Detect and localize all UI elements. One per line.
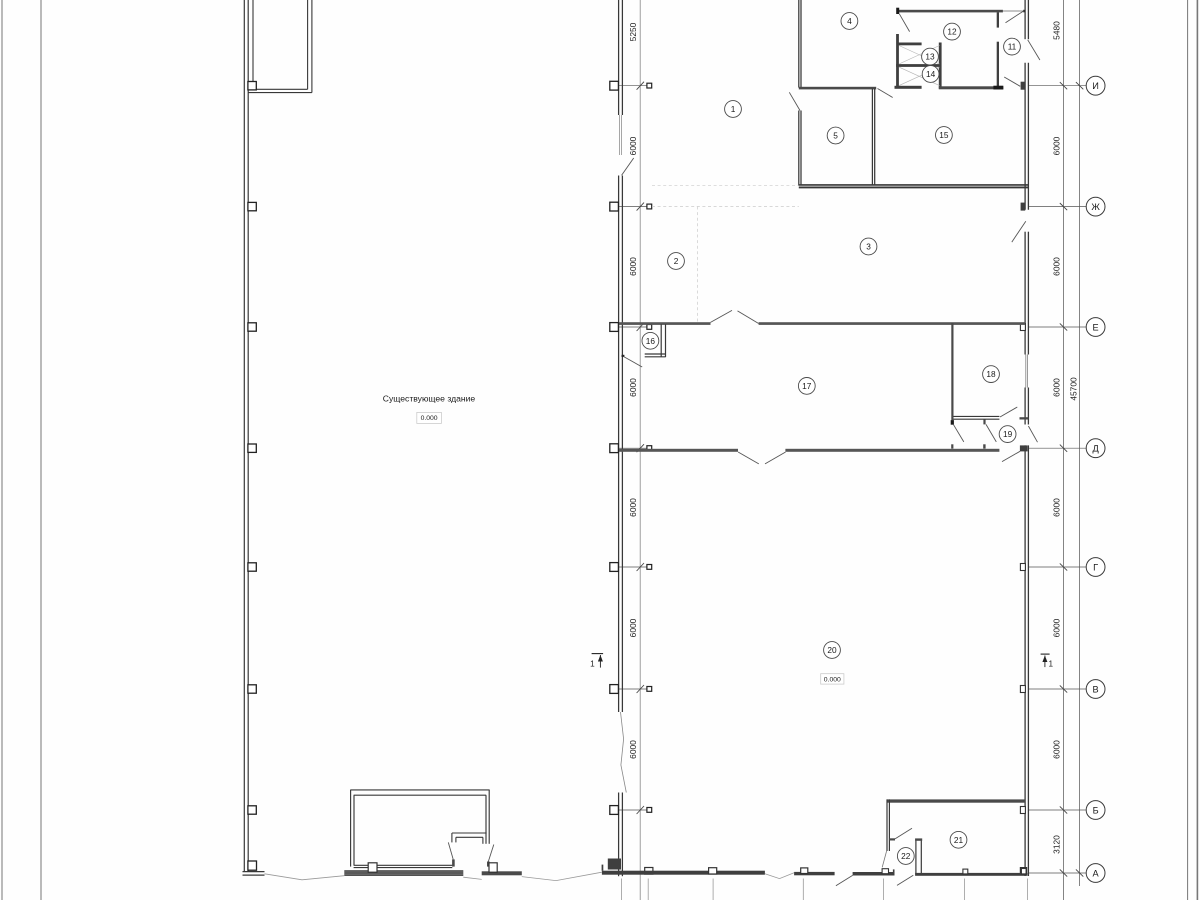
svg-text:11: 11 [1008, 42, 1017, 52]
svg-text:6000: 6000 [1051, 740, 1061, 759]
svg-text:6000: 6000 [1051, 257, 1061, 276]
svg-text:20: 20 [827, 645, 837, 655]
svg-text:5480: 5480 [1051, 21, 1061, 40]
svg-text:3: 3 [866, 241, 871, 251]
svg-text:6000: 6000 [1051, 136, 1061, 155]
svg-text:21: 21 [954, 835, 964, 845]
svg-text:16: 16 [646, 336, 656, 346]
svg-text:5: 5 [833, 130, 838, 140]
svg-text:И: И [1092, 81, 1099, 91]
svg-text:45700: 45700 [1068, 377, 1078, 401]
svg-text:1: 1 [731, 104, 736, 114]
svg-text:6000: 6000 [1051, 378, 1061, 397]
svg-text:0.000: 0.000 [421, 415, 438, 422]
svg-text:13: 13 [925, 52, 935, 62]
svg-text:6000: 6000 [628, 136, 638, 155]
svg-text:А: А [1093, 868, 1100, 878]
svg-text:6000: 6000 [628, 740, 638, 759]
svg-text:2: 2 [674, 256, 679, 266]
svg-text:6000: 6000 [1051, 618, 1061, 637]
svg-text:6000: 6000 [628, 378, 638, 397]
svg-text:17: 17 [802, 381, 812, 391]
svg-text:12: 12 [947, 27, 957, 37]
svg-text:4: 4 [847, 16, 852, 26]
svg-text:Существующее здание: Существующее здание [383, 393, 476, 403]
svg-text:3120: 3120 [1051, 835, 1061, 854]
svg-text:1: 1 [590, 660, 595, 669]
svg-text:Ж: Ж [1091, 202, 1100, 212]
svg-text:6000: 6000 [1051, 498, 1061, 517]
svg-text:1: 1 [1049, 660, 1054, 669]
svg-text:0.000: 0.000 [824, 677, 841, 684]
svg-text:15: 15 [939, 130, 949, 140]
svg-text:6000: 6000 [628, 257, 638, 276]
svg-text:Д: Д [1092, 444, 1099, 454]
svg-text:19: 19 [1003, 429, 1013, 439]
svg-text:18: 18 [986, 369, 996, 379]
svg-text:В: В [1093, 684, 1099, 694]
svg-text:Б: Б [1093, 805, 1099, 815]
svg-text:14: 14 [926, 69, 936, 79]
svg-text:22: 22 [901, 851, 911, 861]
svg-text:Е: Е [1093, 322, 1099, 332]
svg-text:6000: 6000 [628, 618, 638, 637]
svg-text:Г: Г [1093, 562, 1098, 572]
svg-text:6000: 6000 [628, 498, 638, 517]
svg-text:5250: 5250 [628, 22, 638, 41]
